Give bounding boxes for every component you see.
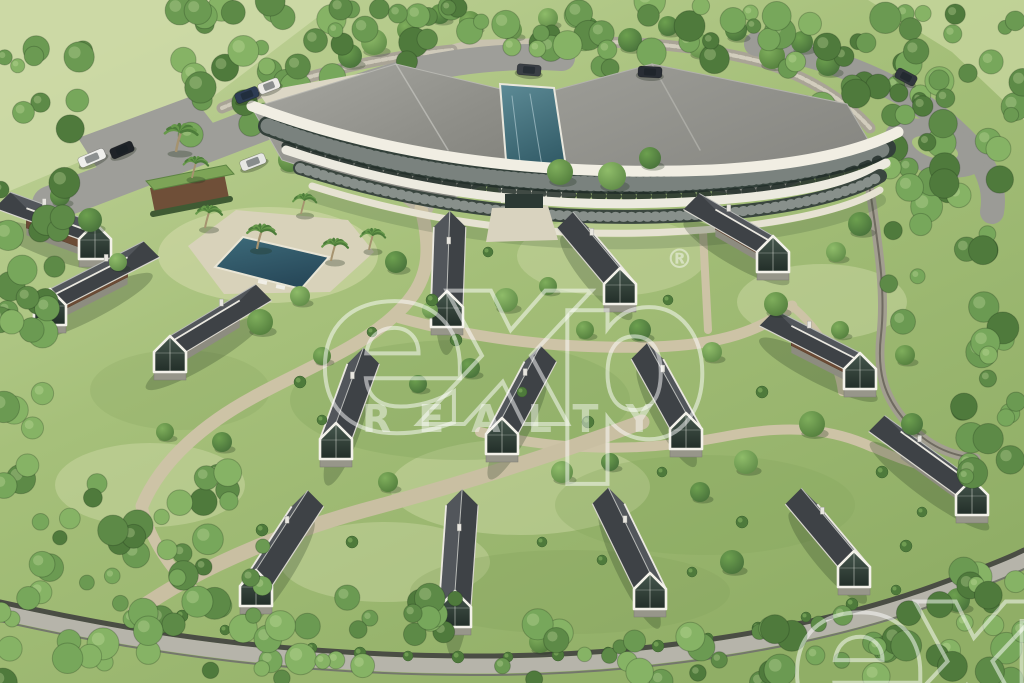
bush-highlight [405, 653, 409, 657]
tree-cluster-canopy [335, 585, 360, 610]
watermark-corner-letter-p: p [1004, 541, 1024, 683]
tree-cluster-canopy [265, 611, 295, 641]
tree-canopy [290, 286, 310, 306]
tree-cluster-canopy [979, 370, 996, 387]
tree-highlight [188, 1, 199, 12]
tree-highlight [714, 654, 721, 661]
tree-highlight [25, 420, 34, 429]
tree-cluster-canopy [986, 166, 1013, 193]
watermark-registered-icon: ® [666, 244, 693, 275]
tree-cluster-canopy [256, 539, 270, 553]
tree-cluster-canopy [912, 96, 933, 117]
tree-highlight [569, 4, 580, 15]
bush [756, 386, 768, 398]
tree-cluster-canopy [44, 256, 65, 277]
bush-highlight [689, 569, 693, 573]
tree-cluster-canopy [17, 587, 40, 610]
tree-canopy [212, 432, 232, 452]
tree-cluster-canopy [702, 32, 719, 49]
tree-cluster-canopy [351, 654, 375, 678]
tree-cluster-canopy [692, 0, 709, 15]
tree-highlight [244, 571, 251, 578]
tree-cluster-canopy [285, 54, 310, 79]
tree-cluster-canopy [154, 509, 169, 524]
cabin-chimney [42, 199, 46, 206]
tree-highlight [189, 76, 202, 89]
tree-cluster-canopy [274, 670, 291, 683]
bush-highlight [878, 468, 883, 473]
tree-cluster-canopy [884, 221, 902, 239]
tree-canopy [799, 411, 825, 437]
tree-cluster-canopy [254, 661, 270, 677]
tree-highlight [496, 15, 507, 26]
tree-cluster-canopy [910, 269, 925, 284]
tree-cluster-canopy [903, 39, 929, 65]
bush-highlight [454, 653, 459, 658]
tree-cluster-canopy [910, 213, 932, 235]
tree-canopy [598, 162, 626, 190]
bush [346, 536, 358, 548]
tree-highlight [330, 654, 337, 661]
tree-highlight [68, 46, 80, 58]
tree-highlight [356, 20, 366, 30]
tree-cluster-canopy [533, 25, 549, 41]
bush [403, 651, 413, 661]
tree-highlight [902, 161, 910, 169]
tree-cluster-canopy [16, 454, 39, 477]
tree-cluster-canopy [637, 4, 659, 26]
cabin-chimney [820, 507, 824, 514]
tree-cluster-canopy [169, 569, 186, 586]
tree-highlight [307, 32, 317, 42]
tree-canopy [156, 423, 174, 441]
tree-highlight [705, 35, 712, 42]
tree-highlight [332, 0, 341, 9]
tree-highlight [38, 300, 48, 310]
tree-cluster-canopy [813, 33, 841, 61]
tree-cluster-canopy [626, 658, 654, 683]
tree-highlight [745, 7, 751, 13]
tree-cluster-canopy [66, 89, 89, 112]
tree-highlight [1000, 450, 1011, 461]
tree-cluster-canopy [49, 167, 80, 198]
tree-cluster-canopy [185, 72, 216, 103]
tree-cluster-canopy [352, 16, 378, 42]
tree-canopy [848, 212, 872, 236]
tree-cluster-canopy [495, 658, 511, 674]
tree-cluster-canopy [441, 0, 456, 15]
bush-highlight [348, 538, 353, 543]
tree-highlight [983, 53, 993, 63]
tree-cluster-canopy [690, 665, 707, 682]
tree-highlight [497, 660, 503, 666]
bush [220, 625, 230, 635]
tree-cluster-canopy [0, 310, 24, 334]
tree-highlight [547, 631, 557, 641]
palm-shadow [187, 177, 206, 184]
tree-cluster-canopy [7, 255, 37, 285]
tree-cluster-canopy [936, 89, 955, 108]
tree-cluster-canopy [404, 604, 422, 622]
watermark-realty-text: REALTY [362, 397, 680, 441]
tree-canopy [831, 321, 849, 339]
tree-cluster-canopy [890, 309, 915, 334]
tree-cluster-canopy [295, 613, 321, 639]
car-windshield [644, 68, 656, 76]
tree-cluster-canopy [50, 205, 75, 230]
tree-highlight [186, 591, 198, 603]
car-windshield [523, 66, 536, 74]
tree-highlight [948, 7, 956, 15]
bush [256, 524, 268, 536]
tree-cluster-canopy [720, 8, 746, 34]
tree-cluster-canopy [711, 652, 727, 668]
tree-highlight [973, 296, 985, 308]
tree-highlight [92, 633, 105, 646]
tree-cluster-canopy [929, 169, 959, 199]
tree-cluster-canopy [918, 133, 936, 151]
tree-cluster-canopy [24, 46, 44, 66]
tree-cluster-canopy [553, 31, 582, 60]
bush-highlight [539, 539, 543, 543]
tree-cluster-canopy [624, 630, 646, 652]
tree-highlight [979, 132, 989, 142]
tree-cluster-canopy [32, 513, 49, 530]
tree-cluster-canopy [16, 286, 39, 309]
tree-canopy [895, 345, 915, 365]
tree-highlight [958, 241, 968, 251]
tree-highlight [593, 24, 603, 34]
palm-shadow [250, 248, 272, 255]
tree-cluster-canopy [53, 530, 67, 544]
tree-cluster-canopy [258, 58, 275, 75]
tree-highlight [704, 48, 716, 60]
tree-canopy [247, 309, 273, 335]
cabin-chimney [104, 254, 108, 261]
tree-cluster-canopy [220, 492, 238, 510]
tree-cluster-canopy [157, 540, 177, 560]
tree-cluster-canopy [112, 595, 128, 611]
tree-cluster-canopy [676, 622, 705, 651]
tree-cluster-canopy [162, 613, 185, 636]
tree-cluster-canopy [895, 105, 915, 125]
tree-highlight [197, 528, 209, 540]
tree-highlight [16, 105, 25, 114]
tree-cluster-canopy [959, 64, 978, 83]
tree-cluster-canopy [492, 10, 520, 38]
tree-canopy [547, 159, 573, 185]
tree-highlight [364, 613, 370, 619]
tree-cluster-canopy [0, 636, 22, 661]
cabin-chimney [457, 524, 461, 531]
tree-highlight [531, 43, 538, 50]
tree-canopy [720, 550, 744, 574]
tree-cluster-canopy [529, 40, 546, 57]
tree-cluster-canopy [880, 275, 898, 293]
tree-cluster-canopy [349, 621, 367, 639]
tree-highlight [939, 92, 947, 100]
tree-cluster-canopy [285, 643, 316, 674]
tree-cluster-canopy [915, 5, 931, 21]
tree-cluster-canopy [958, 469, 973, 484]
tree-cluster-canopy [104, 568, 120, 584]
tree-canopy [639, 147, 661, 169]
tree-cluster-canopy [56, 115, 84, 143]
tree-cluster-canopy [762, 2, 791, 31]
tree-cluster-canopy [448, 591, 463, 606]
tree-cluster-canopy [944, 25, 962, 43]
bush [452, 651, 464, 663]
bush [736, 516, 748, 528]
tree-highlight [35, 386, 44, 395]
tree-highlight [975, 332, 987, 344]
tree-highlight [817, 37, 828, 48]
aerial-site-rendering: e x p ® REALTY e x p [0, 0, 1024, 683]
bush-highlight [356, 649, 361, 654]
tree-cluster-canopy [577, 647, 592, 662]
tree-highlight [916, 99, 924, 107]
tree-cluster-canopy [31, 382, 53, 404]
tree-cluster-canopy [896, 174, 924, 202]
tree-highlight [338, 589, 348, 599]
tree-cluster-canopy [598, 40, 617, 59]
tree-cluster-canopy [544, 628, 569, 653]
tree-highlight [54, 172, 66, 184]
bush-highlight [599, 557, 603, 561]
tree-cluster-canopy [1006, 392, 1024, 411]
tree-cluster-canopy [228, 36, 259, 67]
tree-cluster-canopy [785, 51, 805, 71]
bush-highlight [738, 518, 743, 523]
tree-cluster-canopy [29, 551, 55, 577]
tree-cluster-canopy [12, 101, 34, 123]
tree-cluster-canopy [979, 50, 1003, 74]
tree-highlight [406, 607, 413, 614]
tree-cluster-canopy [997, 409, 1014, 426]
tree-highlight [788, 54, 796, 62]
tree-highlight [34, 96, 42, 104]
bush-highlight [758, 388, 763, 393]
tree-highlight [330, 25, 336, 31]
tree-cluster-canopy [996, 446, 1024, 474]
tree-highlight [653, 673, 662, 682]
tree-cluster-canopy [133, 616, 163, 646]
tree-cluster-canopy [758, 28, 781, 51]
tree-highlight [216, 58, 227, 69]
bush-highlight [222, 627, 226, 631]
tree-highlight [20, 290, 29, 299]
tree-cluster-canopy [52, 643, 83, 674]
tree-cluster-canopy [945, 4, 965, 24]
tree-highlight [527, 613, 539, 625]
tree-highlight [600, 43, 608, 51]
tree-highlight [317, 656, 323, 662]
tree-cluster-canopy [214, 459, 242, 487]
tree-cluster-canopy [388, 4, 407, 23]
palm-shadow [168, 151, 193, 158]
tree-canopy [78, 208, 102, 232]
tree-highlight [946, 28, 953, 35]
tree-cluster-canopy [503, 38, 521, 56]
tree-cluster-canopy [21, 417, 43, 439]
tree-cluster-canopy [221, 0, 245, 24]
tree-cluster-canopy [83, 488, 102, 507]
bush-highlight [296, 378, 301, 383]
tree-cluster-canopy [798, 12, 821, 35]
palm-shadow [199, 227, 219, 234]
tree-cluster-canopy [929, 109, 958, 138]
bush-highlight [654, 642, 659, 647]
tree-highlight [443, 2, 449, 8]
bush [687, 567, 697, 577]
tree-highlight [921, 136, 928, 143]
tree-highlight [290, 648, 303, 661]
tree-cluster-canopy [474, 14, 489, 29]
tree-highlight [270, 615, 282, 627]
exp-watermark-corner: e x p [788, 516, 1024, 683]
cabin-chimney [219, 299, 223, 306]
tree-cluster-canopy [242, 569, 260, 587]
palm-shadow [296, 213, 314, 220]
tree-cluster-canopy [1004, 107, 1019, 122]
tree-highlight [894, 313, 904, 323]
scene-canvas: e x p ® REALTY e x p [0, 0, 1024, 683]
exp-watermark-center: e x p ® REALTY [315, 198, 713, 491]
tree-cluster-canopy [746, 19, 761, 34]
tree-highlight [198, 561, 205, 568]
tree-cluster-canopy [11, 59, 25, 73]
cabin-chimney [285, 516, 289, 523]
bush [652, 640, 664, 652]
tree-canopy [734, 450, 758, 474]
cabin-chimney [623, 516, 627, 523]
tree-cluster-canopy [929, 70, 949, 90]
bush [597, 555, 607, 565]
tree-highlight [1013, 73, 1024, 84]
tree-cluster-canopy [986, 136, 1011, 161]
tree-highlight [391, 7, 399, 15]
tree-cluster-canopy [167, 490, 193, 516]
bush-highlight [505, 654, 509, 658]
tree-cluster-canopy [950, 393, 977, 420]
tree-cluster-canopy [315, 654, 330, 669]
tree-highlight [692, 667, 699, 674]
tree-cluster-canopy [856, 33, 876, 53]
tree-highlight [354, 657, 364, 667]
tree-cluster-canopy [637, 38, 666, 67]
tree-highlight [749, 21, 755, 27]
tree-cluster-canopy [190, 488, 217, 515]
tree-cluster-canopy [968, 236, 997, 265]
tree-highlight [170, 0, 182, 12]
tree-cluster-canopy [182, 586, 213, 617]
bush [537, 537, 547, 547]
tree-cluster-canopy [192, 524, 223, 555]
tree-highlight [680, 627, 692, 639]
tree-cluster-canopy [328, 23, 343, 38]
tree-cluster-canopy [304, 29, 328, 53]
bush-highlight [258, 526, 263, 531]
cabin-chimney [807, 321, 811, 328]
tree-cluster-canopy [64, 42, 94, 72]
tree-cluster-canopy [973, 424, 1003, 454]
tree-canopy [826, 242, 846, 262]
tree-highlight [33, 555, 43, 565]
tree-cluster-canopy [980, 346, 998, 364]
tree-cluster-canopy [526, 671, 543, 683]
tree-cluster-canopy [59, 508, 80, 529]
tree-highlight [769, 659, 782, 672]
tree-highlight [13, 61, 19, 67]
tree-cluster-canopy [406, 4, 430, 28]
tree-canopy [109, 253, 127, 271]
tree-highlight [961, 471, 967, 477]
bush-highlight [919, 509, 923, 513]
tree-cluster-canopy [1005, 11, 1024, 31]
tree-highlight [198, 469, 208, 479]
cabin-chimney [727, 205, 731, 212]
bush [294, 376, 306, 388]
tree-cluster-canopy [202, 662, 218, 678]
tree-cluster-canopy [79, 575, 94, 590]
tree-cluster-canopy [98, 515, 128, 545]
tree-canopy [764, 292, 788, 316]
tree-cluster-canopy [417, 29, 438, 50]
tree-highlight [907, 42, 917, 52]
tree-cluster-canopy [899, 18, 921, 40]
tree-highlight [107, 570, 113, 576]
tree-highlight [900, 178, 911, 189]
tree-highlight [506, 41, 513, 48]
tree-highlight [289, 58, 299, 68]
tree-cluster-canopy [369, 0, 389, 19]
tree-highlight [1005, 97, 1016, 108]
tree-canopy [901, 413, 923, 435]
bush [876, 466, 888, 478]
tree-cluster-canopy [760, 615, 789, 644]
tree-highlight [409, 7, 419, 17]
tree-cluster-canopy [246, 608, 262, 624]
tree-highlight [232, 40, 244, 52]
tree-highlight [982, 349, 989, 356]
tree-highlight [912, 271, 918, 277]
tree-highlight [138, 620, 150, 632]
tree-highlight [419, 588, 431, 600]
tree-cluster-canopy [870, 2, 901, 33]
tree-highlight [982, 373, 989, 380]
